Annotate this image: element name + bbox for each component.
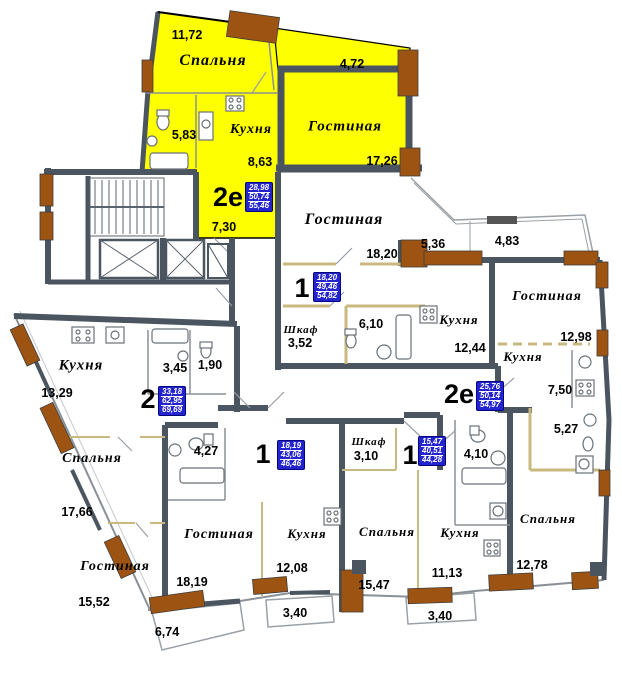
area-label: 4,72 (340, 57, 364, 71)
room-label: Спальня (520, 511, 576, 527)
summary-value: 15,47 (421, 438, 443, 446)
area-label: 17,26 (366, 154, 397, 168)
area-label: 3,40 (428, 609, 452, 623)
area-label: 3,52 (288, 336, 312, 350)
floor-plan: СпальняКухняГостинаяГостинаяКухняГостина… (0, 0, 622, 677)
area-label: 1,90 (198, 358, 222, 372)
summary-value: 18,19 (280, 442, 302, 450)
elevator-icon (166, 240, 204, 278)
room-label: Кухня (287, 526, 326, 542)
summary-value: 62,95 (161, 396, 183, 405)
area-label: 12,98 (560, 330, 591, 344)
room-label: Гостиная (512, 289, 582, 305)
area-label: 15,47 (358, 578, 389, 592)
area-label: 7,50 (548, 383, 572, 397)
room-label: Гостиная (308, 119, 382, 136)
room-label: Шкаф (283, 324, 318, 336)
room-label: Кухня (440, 525, 479, 541)
area-label: 7,30 (212, 220, 236, 234)
summary-value: 40,51 (421, 446, 443, 455)
apartment-area-summary: 25,7650,1454,97 (476, 381, 504, 411)
apartment-area-summary: 33,1862,9569,69 (158, 386, 186, 416)
apartment-type-label: 2 (140, 387, 155, 411)
apartment-type-label: 2е (213, 185, 243, 209)
summary-value: 25,76 (479, 383, 501, 391)
area-label: 6,74 (155, 625, 179, 639)
room-label: Кухня (230, 122, 272, 138)
room-label: Кухня (59, 358, 104, 375)
summary-value: 54,82 (316, 291, 338, 300)
summary-value: 43,06 (280, 450, 302, 459)
elevator-icon (100, 240, 158, 278)
room-label: Спальня (179, 52, 246, 70)
summary-value: 33,18 (161, 388, 183, 396)
apartment-area-summary: 18,2049,4654,82 (313, 272, 341, 302)
summary-value: 44,28 (421, 455, 443, 464)
area-label: 4,10 (464, 447, 488, 461)
area-label: 3,40 (283, 606, 307, 620)
summary-value: 50,14 (479, 391, 501, 400)
summary-value: 46,46 (280, 459, 302, 468)
area-label: 12,08 (276, 561, 307, 575)
area-label: 5,27 (554, 422, 578, 436)
room-label: Шкаф (351, 436, 386, 448)
area-label: 13,29 (41, 386, 72, 400)
area-label: 12,44 (454, 341, 485, 355)
area-label: 4,27 (194, 444, 218, 458)
summary-value: 18,20 (316, 274, 338, 282)
area-label: 12,78 (516, 558, 547, 572)
room-label: Гостиная (80, 559, 150, 575)
summary-value: 50,74 (248, 192, 270, 201)
apartment-type-label: 1 (294, 276, 309, 300)
apartment-area-summary: 18,1943,0646,46 (277, 440, 305, 470)
room-label: Спальня (62, 451, 122, 467)
stairs-icon (90, 178, 164, 236)
apartment-type-label: 1 (402, 443, 417, 467)
area-label: 11,72 (172, 28, 203, 42)
apartment-type-label: 2е (444, 382, 474, 406)
area-label: 18,19 (176, 575, 207, 589)
summary-value: 69,69 (161, 405, 183, 414)
area-label: 3,10 (354, 449, 378, 463)
room-label: Гостиная (184, 527, 254, 543)
area-label: 15,52 (78, 595, 109, 609)
summary-value: 49,46 (316, 282, 338, 291)
room-label: Кухня (439, 312, 478, 328)
summary-value: 28,98 (248, 184, 270, 192)
room-label: Спальня (359, 524, 415, 540)
area-label: 18,20 (366, 247, 397, 261)
apartment-type-label: 1 (255, 442, 270, 466)
room-label: Кухня (503, 349, 542, 365)
summary-value: 54,97 (479, 400, 501, 409)
area-label: 8,63 (248, 155, 272, 169)
area-label: 17,66 (61, 505, 92, 519)
area-label: 11,13 (432, 566, 463, 580)
partitions (68, 264, 600, 600)
area-label: 5,83 (172, 128, 196, 142)
area-label: 6,10 (359, 317, 383, 331)
summary-value: 55,46 (248, 201, 270, 210)
area-label: 4,83 (495, 234, 519, 248)
balcony-window (487, 216, 517, 224)
apartment-area-summary: 28,9850,7455,46 (245, 182, 273, 212)
area-label: 3,45 (163, 361, 187, 375)
apartment-area-summary: 15,4740,5144,28 (418, 436, 446, 466)
area-label: 5,36 (421, 237, 445, 251)
room-label: Гостиная (305, 211, 383, 229)
